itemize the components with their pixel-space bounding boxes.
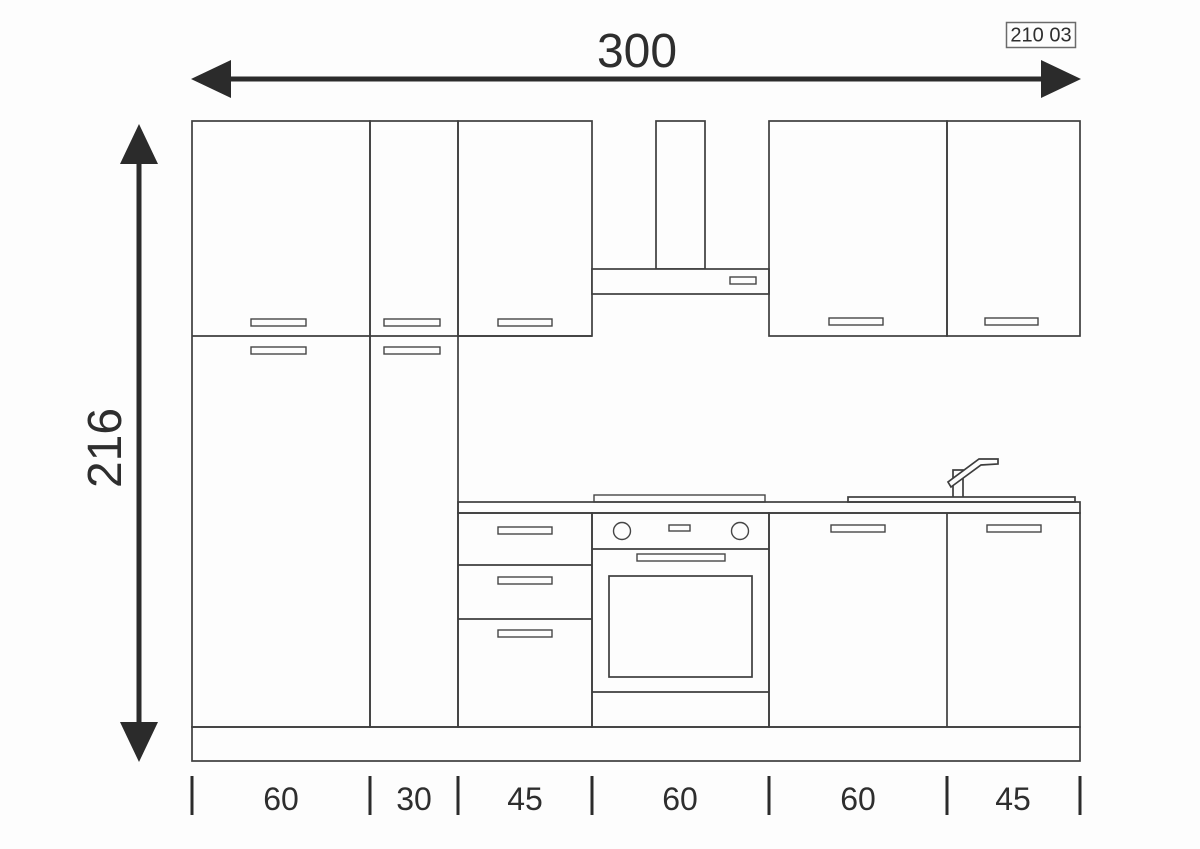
arrow-down-icon — [120, 722, 158, 762]
sink-base-body — [769, 513, 1080, 727]
door-handle — [384, 347, 440, 354]
oven-knob — [732, 523, 749, 540]
drawing-code: 210 03 — [1010, 25, 1071, 47]
drawer-handle — [498, 630, 552, 637]
drawer-unit-45 — [458, 513, 592, 727]
oven-door-window — [609, 576, 752, 677]
plinth-band — [192, 727, 1080, 761]
door-handle — [251, 347, 306, 354]
overall-height-value: 216 — [79, 408, 132, 488]
wall-cabinet-45-right — [947, 121, 1080, 336]
door-handle — [251, 319, 306, 326]
elevation-svg: 300 216 210 03 — [0, 0, 1200, 849]
door-handle — [831, 525, 885, 532]
hood-chimney — [656, 121, 705, 269]
door-handle — [985, 318, 1038, 325]
segment-width-value: 60 — [263, 781, 299, 817]
wall-cabinet-45-body — [458, 121, 592, 336]
countertop — [458, 502, 1080, 513]
segment-dimension-scale: 60 30 45 60 60 45 — [192, 776, 1080, 817]
door-handle — [829, 318, 883, 325]
faucet — [948, 459, 998, 498]
segment-width-value: 60 — [662, 781, 698, 817]
segment-width-value: 45 — [995, 781, 1031, 817]
drawing-code-box: 210 03 — [1007, 23, 1076, 48]
drawer-unit-body — [458, 513, 592, 727]
tall-cabinet-30-body — [370, 121, 458, 727]
drawer-handle — [498, 577, 552, 584]
arrow-left-icon — [191, 60, 231, 98]
oven-knob — [614, 523, 631, 540]
cooktop — [594, 495, 765, 502]
hood-body — [592, 269, 769, 294]
plinth — [192, 727, 1080, 761]
countertop-slab — [458, 502, 1080, 513]
door-handle — [498, 319, 552, 326]
overall-width-value: 300 — [597, 25, 677, 78]
kitchen-elevation-drawing: 300 216 210 03 — [0, 0, 1200, 849]
oven-display — [669, 525, 690, 531]
height-dimension: 216 — [79, 124, 158, 762]
segment-width-value: 30 — [396, 781, 432, 817]
oven — [592, 513, 769, 727]
wall-cabinet-60-right — [769, 121, 947, 336]
cooker-hood — [592, 121, 769, 294]
door-handle — [987, 525, 1041, 532]
segment-width-value: 45 — [507, 781, 543, 817]
door-handle — [384, 319, 440, 326]
wall-cabinet-60-right-body — [769, 121, 947, 336]
wall-cabinet-45-right-body — [947, 121, 1080, 336]
cooktop-panel — [594, 495, 765, 502]
tall-cabinet-60 — [192, 121, 370, 727]
width-dimension: 300 — [191, 25, 1081, 98]
oven-body — [592, 513, 769, 727]
tall-cabinet-60-body — [192, 121, 370, 727]
arrow-right-icon — [1041, 60, 1081, 98]
oven-door-handle — [637, 554, 725, 561]
arrow-up-icon — [120, 124, 158, 164]
sink-base-cabinets — [769, 513, 1080, 727]
drawer-handle — [498, 527, 552, 534]
segment-width-value: 60 — [840, 781, 876, 817]
tall-cabinet-30 — [370, 121, 458, 727]
wall-cabinet-45 — [458, 121, 592, 336]
